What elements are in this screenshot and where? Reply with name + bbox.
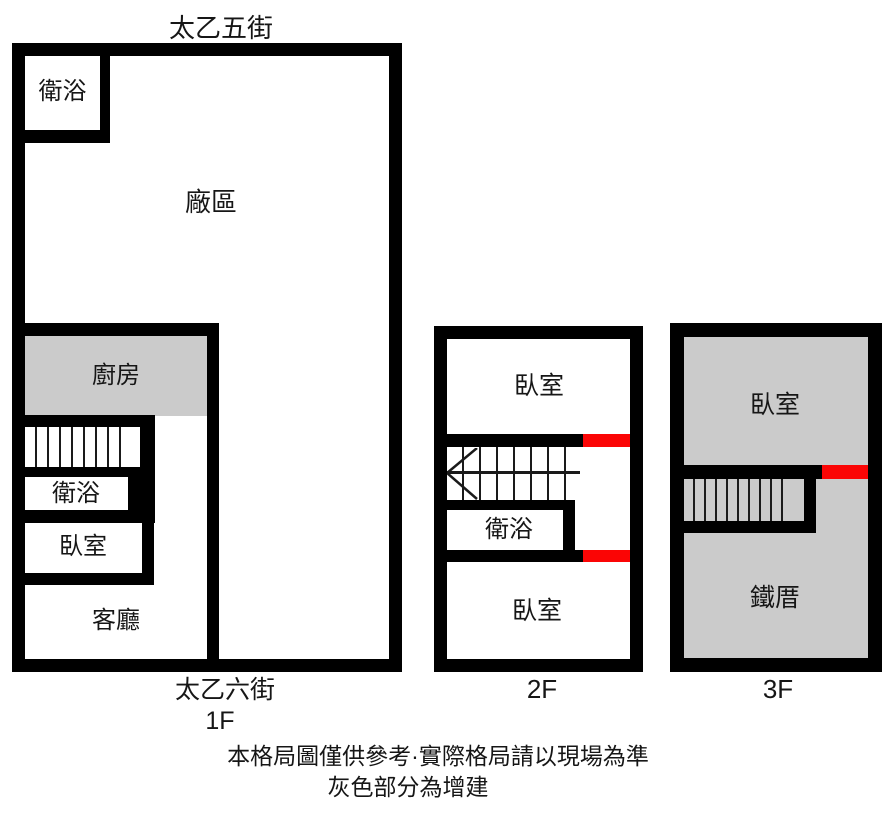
floor2-bathroom-label: 衛浴	[449, 516, 569, 544]
floor1-living-room-label: 客廳	[56, 607, 176, 635]
street-label-bottom: 太乙六街	[125, 676, 325, 705]
floor2-stair-bottom-wall	[440, 500, 575, 510]
floor-plan-image: 太乙五街 衛浴 廠區 廚房 衛浴 臥室 客廳 太乙六街 1F 臥室 衛浴 臥室 …	[0, 0, 889, 814]
floor1-stair-bottom-wall	[12, 467, 140, 477]
floor2-label: 2F	[492, 675, 592, 705]
floor3-iron-house-label: 鐵厝	[715, 584, 835, 613]
floor1-bathroom-label: 衛浴	[16, 480, 136, 508]
floor1-bathroom-top-right-wall	[100, 43, 110, 143]
floor2-bedroom-bottom-wall	[440, 434, 583, 447]
floor3-bedroom-bottom-wall	[677, 465, 822, 479]
floor1-bedroom-label: 臥室	[23, 533, 143, 561]
floor3-stair-bottom-wall	[677, 521, 816, 533]
floor1-kitchen-label: 廚房	[56, 362, 176, 390]
floor1-label: 1F	[170, 707, 270, 736]
floor1-stair-right-wall	[140, 415, 155, 477]
gray-addition-note: 灰色部分為增建	[88, 774, 728, 800]
floor1-stair-top-wall	[12, 415, 155, 427]
floor1-bathroom-top-bottom-wall	[12, 130, 110, 143]
floor2-door-marker-top	[583, 434, 630, 447]
street-label-top: 太乙五街	[121, 14, 321, 44]
floor3-door-marker	[822, 465, 868, 479]
floor1-bathroom-top-label: 衛浴	[25, 78, 100, 106]
floor2-door-marker-bottom	[583, 550, 630, 562]
floor1-bedroom-bottom-wall	[12, 573, 154, 585]
floor2-bedroom-bottom-label: 臥室	[477, 597, 597, 626]
floor3-stair-treads	[684, 479, 786, 521]
stair-direction-chevron-icon	[447, 448, 479, 500]
floor2-bedroom-top-label: 臥室	[479, 372, 599, 401]
floor1-interior-vertical-wall	[207, 323, 219, 672]
floor1-bathroom-bottom-wall	[12, 510, 153, 523]
floor3-label: 3F	[728, 675, 828, 705]
disclaimer-text: 本格局圖僅供參考·實際格局請以現場為準	[88, 743, 788, 769]
floor2-bathroom-bottom-wall	[440, 550, 583, 562]
floor3-bedroom-label: 臥室	[715, 391, 835, 420]
floor1-kitchen-top-wall	[12, 323, 219, 336]
floor1-factory-label: 廠區	[151, 188, 271, 218]
floor1-stair-treads	[25, 427, 130, 467]
